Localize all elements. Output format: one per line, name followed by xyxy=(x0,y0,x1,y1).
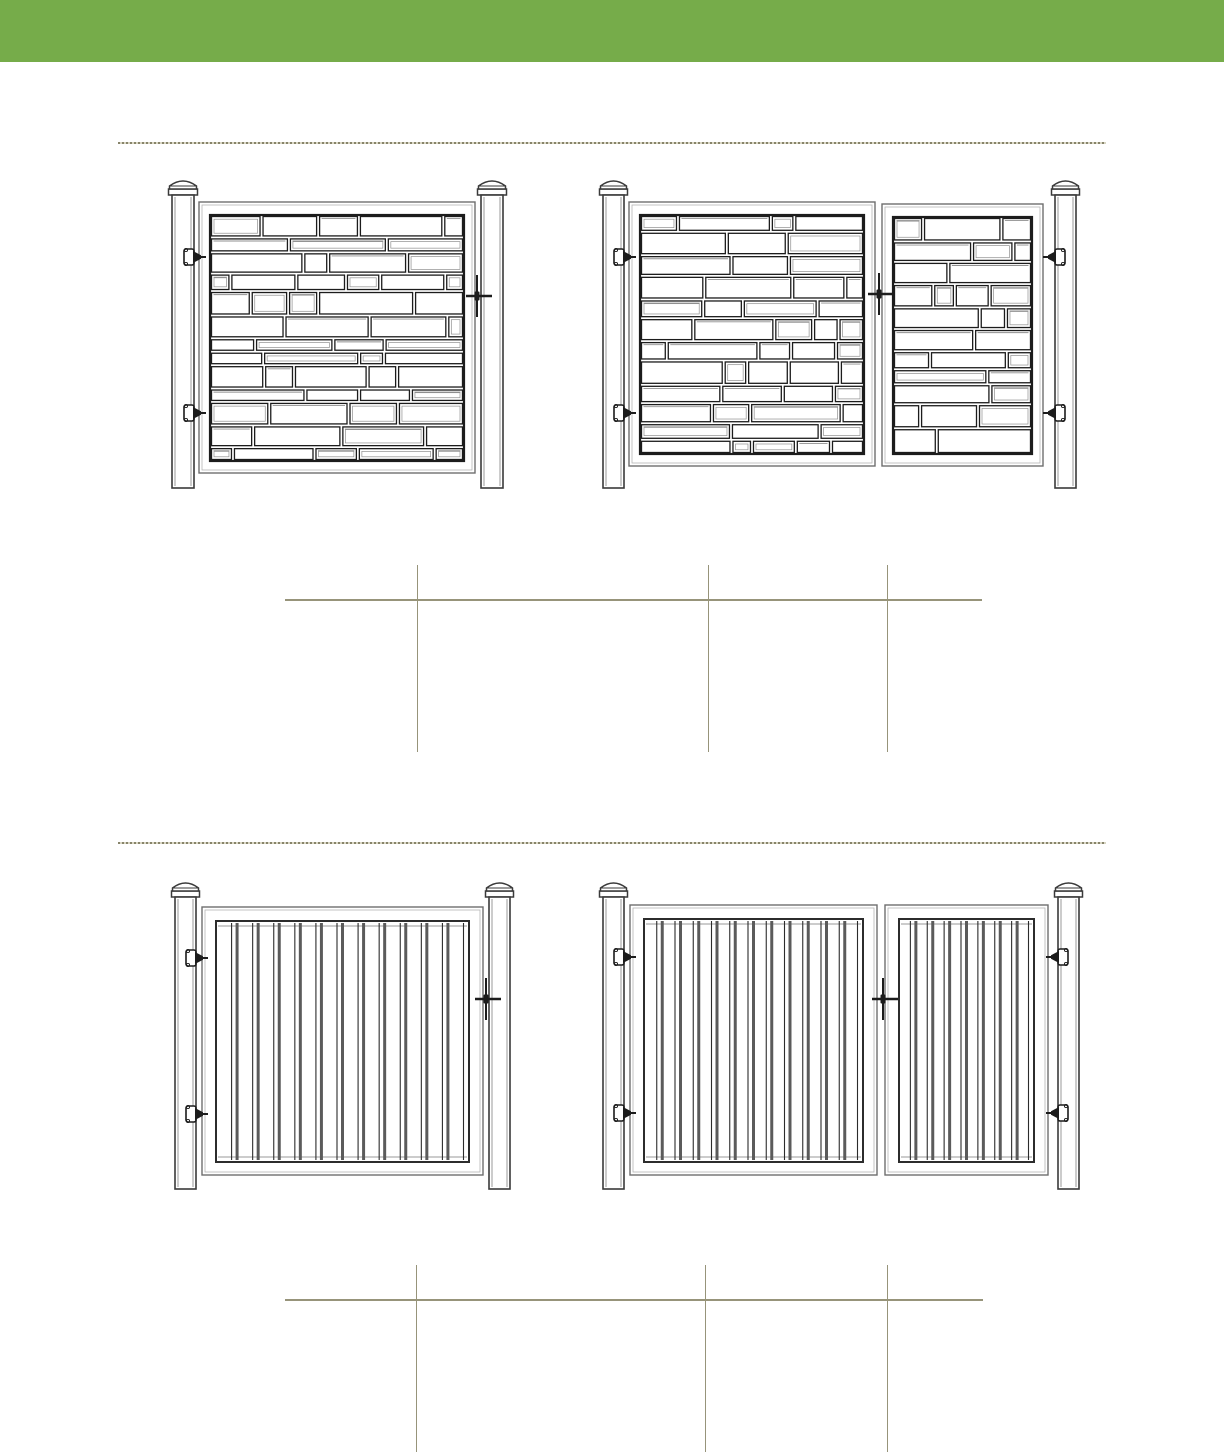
table-line xyxy=(285,599,982,601)
stone-double-gate-drawing xyxy=(600,181,1080,488)
table-line xyxy=(285,1299,983,1301)
table-line xyxy=(708,565,710,752)
gate-drawings-canvas xyxy=(0,0,1224,1454)
privacy-double-gate-drawing xyxy=(600,883,1083,1189)
catalog-page xyxy=(0,0,1224,1454)
privacy-single-gate-drawing xyxy=(172,883,514,1189)
table-line xyxy=(887,565,889,752)
stone-single-gate-drawing xyxy=(169,181,507,488)
table-line xyxy=(705,1265,707,1452)
table-line xyxy=(887,1265,889,1452)
table-line xyxy=(416,1265,418,1452)
table-line xyxy=(417,565,419,752)
